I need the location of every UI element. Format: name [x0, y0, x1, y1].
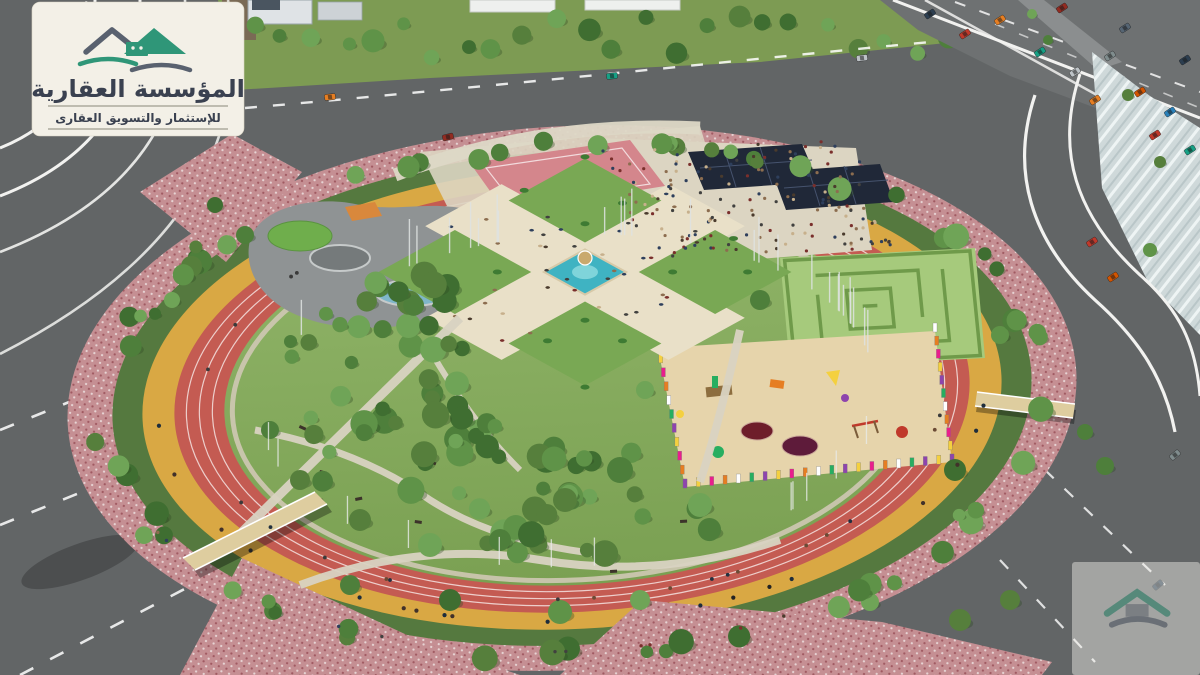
person-dot	[833, 236, 836, 239]
person-dot	[676, 153, 679, 156]
fence-panel	[776, 470, 780, 479]
cyclist-dot	[450, 614, 454, 618]
tree	[1122, 89, 1134, 101]
person-dot	[687, 211, 690, 214]
fence-panel	[870, 462, 874, 471]
tree	[247, 17, 264, 34]
person-dot	[748, 198, 751, 201]
tree	[472, 645, 498, 671]
tree	[488, 419, 503, 434]
tree	[304, 425, 323, 444]
tree	[424, 50, 440, 66]
person-dot	[681, 239, 684, 242]
fence-panel	[763, 472, 767, 481]
person-dot	[628, 193, 631, 196]
person-dot	[660, 227, 663, 230]
runner-dot	[388, 578, 392, 582]
cyclist-dot	[546, 620, 550, 624]
person-dot	[655, 208, 658, 211]
person-dot	[684, 247, 687, 250]
person-dot	[824, 190, 827, 193]
greenhouse-row	[585, 0, 680, 10]
building-roof	[252, 0, 280, 10]
person-dot	[711, 216, 714, 219]
person-dot	[807, 174, 810, 177]
person-dot	[732, 204, 735, 207]
person-dot	[774, 149, 777, 152]
person-dot	[858, 183, 861, 186]
person-dot	[851, 248, 854, 251]
tree	[536, 504, 557, 525]
cyclist-dot	[767, 585, 771, 589]
fence-panel	[935, 336, 939, 345]
person-dot	[699, 191, 702, 194]
fence-panel	[750, 473, 754, 482]
person-dot	[708, 219, 711, 222]
tree	[420, 272, 447, 299]
tree	[312, 471, 333, 492]
person-dot	[763, 156, 766, 159]
runner-dot	[556, 597, 560, 601]
person-dot	[784, 243, 787, 246]
person-dot	[727, 243, 730, 246]
runner-dot	[289, 275, 293, 279]
tree	[1043, 35, 1053, 45]
tree	[553, 488, 577, 512]
tree	[418, 533, 442, 557]
person-dot	[792, 193, 795, 196]
tree	[666, 42, 687, 63]
fence-panel	[736, 474, 740, 483]
walker-dot	[739, 626, 742, 629]
person-dot	[849, 242, 852, 245]
fence-panel	[680, 465, 684, 474]
person-dot	[858, 160, 861, 163]
tree	[439, 589, 461, 611]
person-dot	[844, 215, 847, 218]
trampoline	[782, 436, 818, 456]
person-dot	[667, 185, 670, 188]
fence-panel	[710, 477, 714, 486]
tree	[261, 421, 279, 439]
tree	[164, 292, 180, 308]
person-dot	[826, 162, 829, 165]
person-dot	[673, 251, 676, 254]
person-dot	[675, 170, 678, 173]
tree	[491, 449, 506, 464]
tree	[481, 39, 501, 59]
tree	[848, 579, 870, 601]
tree	[1027, 9, 1037, 19]
tree	[1143, 243, 1157, 257]
tree	[397, 17, 410, 30]
tree	[547, 9, 566, 28]
tree	[688, 493, 712, 517]
person-dot	[653, 148, 656, 151]
car	[324, 93, 336, 100]
person-dot	[669, 179, 672, 182]
tree	[931, 541, 954, 564]
fence-panel	[675, 437, 679, 446]
person-dot	[686, 237, 689, 240]
tree	[953, 509, 965, 521]
greenhouse-row	[470, 0, 555, 12]
person-dot	[794, 152, 797, 155]
person-dot	[871, 242, 874, 245]
person-dot	[776, 176, 779, 179]
fence-panel	[678, 451, 682, 460]
person-dot	[756, 143, 759, 146]
tree	[345, 356, 358, 369]
tree	[978, 247, 991, 260]
runner-dot	[233, 323, 237, 327]
tree	[539, 640, 565, 666]
runner-dot	[668, 586, 672, 590]
walker-dot	[165, 539, 168, 542]
tree	[419, 316, 438, 335]
person-dot	[884, 239, 887, 242]
person-dot	[887, 240, 890, 243]
tree	[910, 46, 925, 61]
tree	[411, 441, 437, 467]
person-dot	[791, 232, 794, 235]
fence-panel	[723, 475, 727, 484]
cyclist-dot	[219, 528, 223, 532]
person-dot	[849, 209, 852, 212]
person-dot	[697, 170, 700, 173]
runner-dot	[239, 501, 243, 505]
tree	[468, 149, 489, 170]
tree	[607, 457, 633, 483]
person-dot	[813, 184, 816, 187]
fence-panel	[943, 402, 947, 411]
person-dot	[634, 201, 637, 204]
person-dot	[757, 192, 760, 195]
person-dot	[713, 219, 716, 222]
person-dot	[694, 233, 697, 236]
tree	[1096, 457, 1114, 475]
tree	[1000, 590, 1020, 610]
person-dot	[757, 168, 760, 171]
person-dot	[712, 246, 715, 249]
fence-panel	[883, 460, 887, 469]
tree	[949, 609, 971, 631]
fence-panel	[830, 465, 834, 474]
tree	[750, 290, 770, 310]
person-dot	[642, 167, 645, 170]
tree	[440, 336, 457, 353]
tree	[135, 526, 153, 544]
person-dot	[618, 169, 621, 172]
cyclist-dot	[974, 429, 978, 433]
runner-dot	[736, 570, 740, 574]
person-dot	[775, 239, 778, 242]
tree	[828, 177, 852, 201]
person-dot	[752, 155, 755, 158]
tree	[301, 334, 318, 351]
tree	[304, 411, 319, 426]
walker-dot	[553, 650, 556, 653]
tree	[349, 509, 371, 531]
tree	[347, 166, 365, 184]
person-dot	[764, 250, 767, 253]
tree	[340, 575, 360, 595]
cyclist-dot	[955, 463, 959, 467]
person-dot	[880, 240, 883, 243]
runner-dot	[206, 367, 210, 371]
fence-panel	[942, 389, 946, 398]
tree	[108, 455, 130, 477]
runner-dot	[384, 577, 388, 581]
person-dot	[727, 211, 730, 214]
person-dot	[836, 190, 839, 193]
tree	[668, 629, 693, 654]
person-dot	[725, 249, 728, 252]
fence-panel	[672, 423, 676, 432]
person-dot	[819, 140, 822, 143]
tree	[290, 470, 310, 490]
tree	[301, 29, 320, 48]
tree	[422, 401, 449, 428]
tree	[120, 335, 142, 357]
tree	[273, 29, 287, 43]
tree	[396, 313, 421, 338]
fountain-statue	[578, 251, 592, 265]
runner-dot	[825, 533, 829, 537]
car	[606, 72, 618, 79]
person-dot	[827, 196, 830, 199]
logo-watermark	[1072, 562, 1200, 675]
walker-dot	[337, 625, 340, 628]
tree	[339, 619, 359, 639]
person-dot	[833, 185, 836, 188]
walker-dot	[648, 643, 651, 646]
runner-dot	[295, 271, 299, 275]
tree	[224, 581, 242, 599]
tree	[343, 37, 356, 50]
bench	[680, 520, 687, 523]
tree	[207, 197, 223, 213]
tree	[361, 29, 384, 52]
tree	[388, 416, 403, 431]
tree	[887, 575, 902, 590]
person-dot	[705, 165, 708, 168]
person-dot	[688, 163, 691, 166]
person-dot	[819, 146, 822, 149]
person-dot	[700, 177, 703, 180]
person-dot	[845, 204, 848, 207]
tree	[489, 529, 511, 551]
runner-dot	[710, 577, 714, 581]
person-dot	[628, 162, 631, 165]
tree	[542, 447, 567, 472]
tree	[330, 386, 351, 407]
person-dot	[681, 235, 684, 238]
tree	[698, 518, 721, 541]
tree	[189, 240, 202, 253]
tree	[445, 371, 469, 395]
tree	[536, 482, 550, 496]
walker-dot	[564, 650, 567, 653]
tree	[641, 646, 654, 659]
person-dot	[658, 246, 661, 249]
play-mound	[268, 221, 332, 251]
person-dot	[665, 170, 668, 173]
tree	[217, 235, 236, 254]
person-dot	[745, 233, 748, 236]
tree	[155, 526, 173, 544]
person-dot	[727, 182, 730, 185]
tree	[1032, 329, 1048, 345]
person-dot	[811, 234, 814, 237]
fence-panel	[923, 457, 927, 466]
person-dot	[821, 201, 824, 204]
person-dot	[828, 204, 831, 207]
tree	[634, 508, 650, 524]
tree	[534, 132, 553, 151]
person-dot	[788, 150, 791, 153]
tree	[989, 261, 1004, 276]
tree	[491, 144, 509, 162]
person-dot	[837, 206, 840, 209]
logo-title: المؤسسة العقارية	[31, 75, 245, 103]
person-dot	[671, 209, 674, 212]
runner-dot	[592, 596, 596, 600]
person-dot	[851, 172, 854, 175]
cyclist-dot	[921, 501, 925, 505]
fence-panel	[817, 467, 821, 476]
fence-panel	[947, 428, 951, 437]
tree	[821, 18, 835, 32]
tree	[236, 226, 254, 244]
fence-panel	[948, 441, 952, 450]
fence-panel	[933, 323, 937, 332]
cyclist-dot	[249, 548, 253, 552]
person-dot	[635, 224, 638, 227]
person-dot	[830, 150, 833, 153]
cyclist-dot	[157, 424, 161, 428]
tree	[888, 187, 904, 203]
person-dot	[805, 249, 808, 252]
tree	[375, 401, 390, 416]
cyclist-dot	[981, 404, 985, 408]
person-dot	[874, 221, 877, 224]
cyclist-dot	[414, 609, 418, 613]
runner-dot	[726, 573, 730, 577]
tree	[397, 477, 424, 504]
tree	[134, 310, 147, 323]
tree	[944, 459, 966, 481]
tree	[576, 450, 592, 466]
runner-dot	[933, 428, 937, 432]
cyclist-dot	[731, 595, 735, 599]
person-dot	[850, 224, 853, 227]
person-dot	[656, 197, 659, 200]
tree	[347, 315, 370, 338]
runner-dot	[804, 544, 808, 548]
runner-dot	[848, 519, 852, 523]
walker-dot	[782, 614, 785, 617]
fence-panel	[945, 415, 949, 424]
fence-panel	[857, 463, 861, 472]
tree	[364, 271, 386, 293]
tree	[374, 320, 392, 338]
person-dot	[760, 223, 763, 226]
person-dot	[822, 198, 825, 201]
logo-subtitle: للإستثمار والتسويق العقارى	[55, 111, 221, 126]
person-dot	[708, 167, 711, 170]
person-dot	[889, 243, 892, 246]
person-dot	[703, 237, 706, 240]
tree	[1011, 451, 1035, 475]
person-dot	[671, 194, 674, 197]
fence-panel	[667, 396, 671, 405]
person-dot	[761, 168, 764, 171]
walker-dot	[639, 644, 642, 647]
tree	[548, 600, 572, 624]
tree	[262, 594, 276, 608]
tree	[968, 502, 984, 518]
tree	[704, 142, 719, 157]
person-dot	[775, 200, 778, 203]
person-dot	[671, 254, 674, 257]
fence-panel	[843, 464, 847, 473]
fence-panel	[897, 459, 901, 468]
person-dot	[693, 244, 696, 247]
person-dot	[709, 234, 712, 237]
tree	[512, 26, 531, 45]
tree	[1007, 310, 1027, 330]
cyclist-dot	[698, 603, 702, 607]
tree	[356, 424, 373, 441]
tree	[828, 596, 850, 618]
person-dot	[610, 157, 613, 160]
person-dot	[734, 248, 737, 251]
tree	[319, 307, 333, 321]
person-dot	[862, 207, 865, 210]
walker-dot	[380, 635, 383, 638]
car-cabin	[328, 95, 333, 100]
car-cabin	[860, 56, 865, 61]
fence-panel	[790, 469, 794, 478]
tree	[332, 317, 347, 332]
person-dot	[651, 195, 654, 198]
person-dot	[810, 223, 813, 226]
tree	[601, 40, 620, 59]
person-dot	[789, 157, 792, 160]
tree	[173, 264, 194, 285]
person-dot	[861, 226, 864, 229]
cyclist-dot	[402, 606, 406, 610]
tree	[1028, 396, 1053, 421]
tree	[284, 335, 297, 348]
trampoline	[741, 422, 773, 440]
person-dot	[763, 197, 766, 200]
fence-panel	[940, 375, 944, 384]
tree	[700, 18, 715, 33]
fence-panel	[683, 479, 687, 488]
fence-panel	[938, 362, 942, 371]
person-dot	[833, 145, 836, 148]
car-cabin	[610, 74, 615, 79]
tree	[462, 40, 476, 54]
runner-dot	[938, 413, 942, 417]
car	[856, 54, 868, 61]
fence-panel	[910, 458, 914, 467]
tree	[149, 508, 167, 526]
person-dot	[632, 181, 635, 184]
person-dot	[804, 145, 807, 148]
